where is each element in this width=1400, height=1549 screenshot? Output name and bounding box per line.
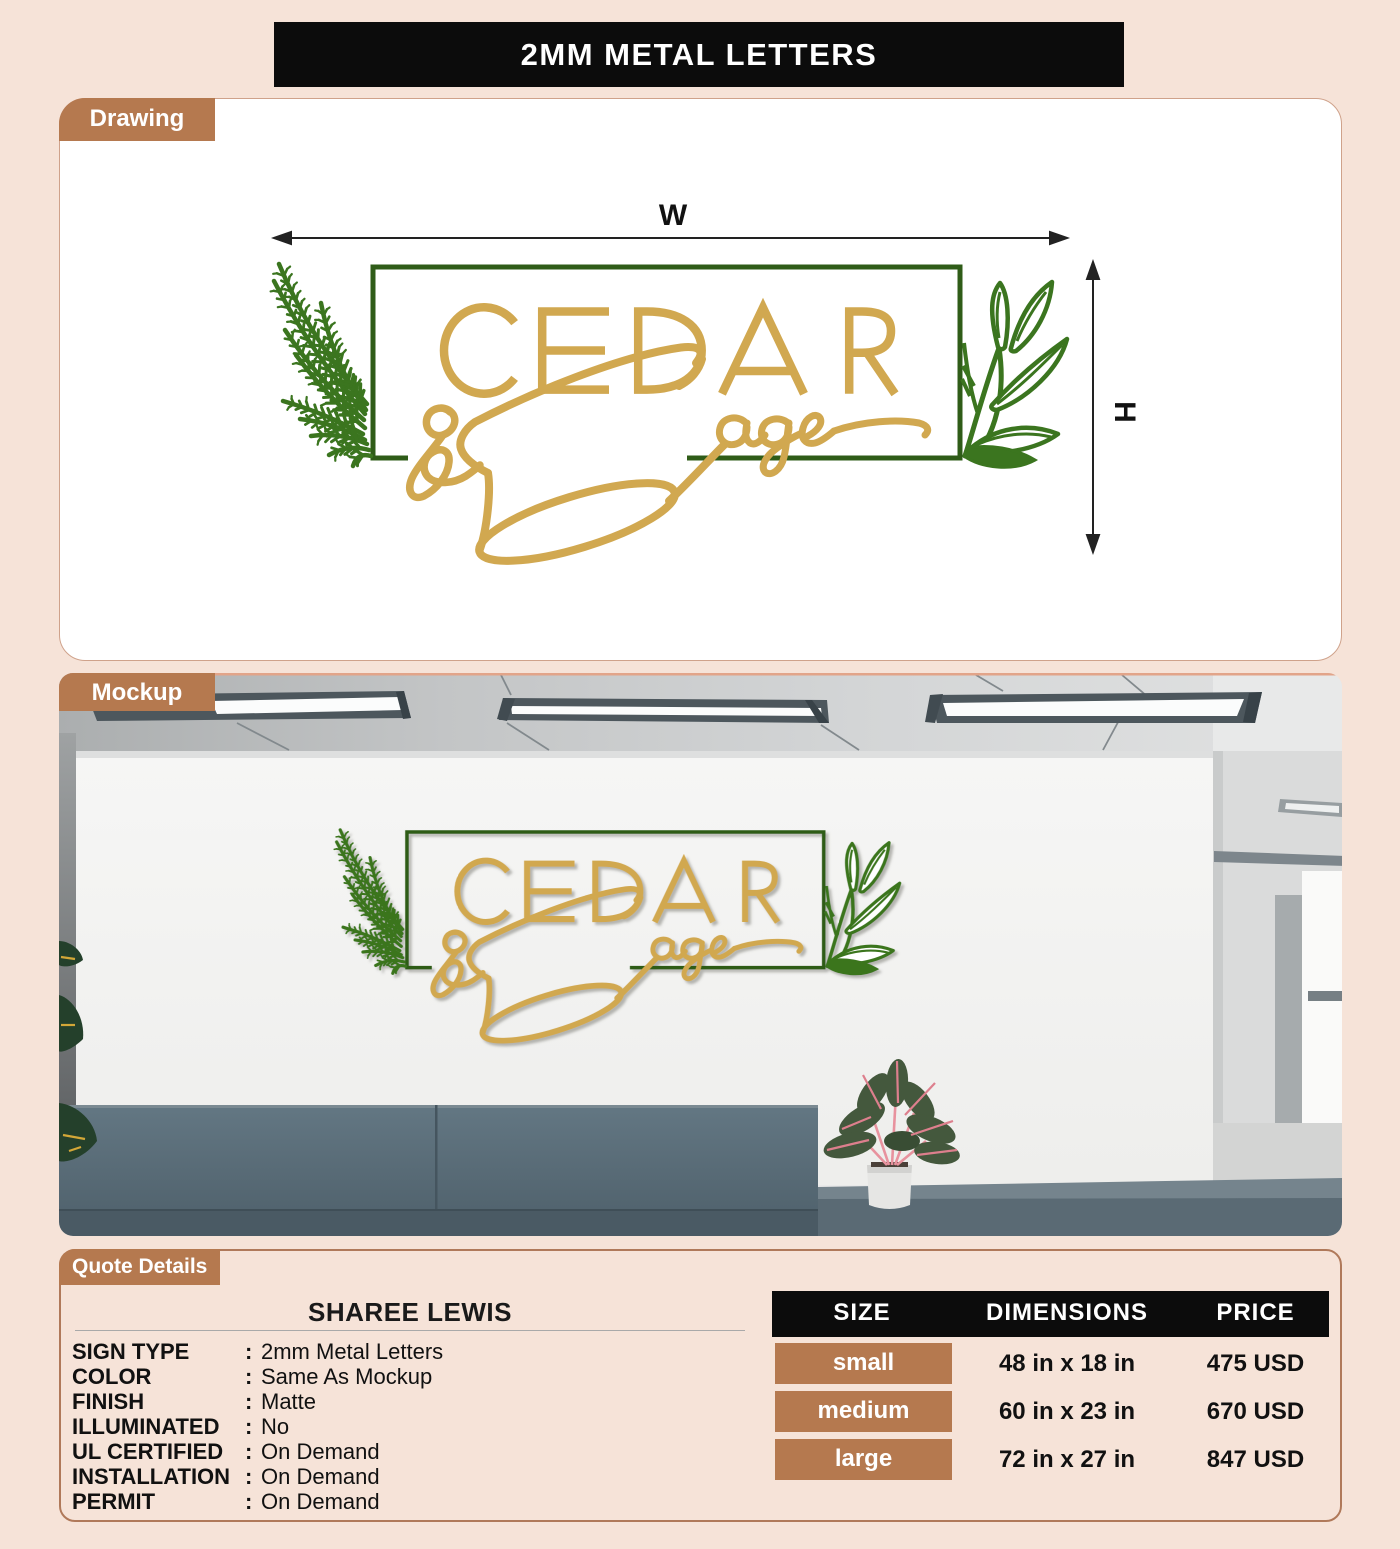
svg-text:H: H bbox=[1108, 401, 1141, 423]
svg-text:W: W bbox=[659, 199, 688, 232]
